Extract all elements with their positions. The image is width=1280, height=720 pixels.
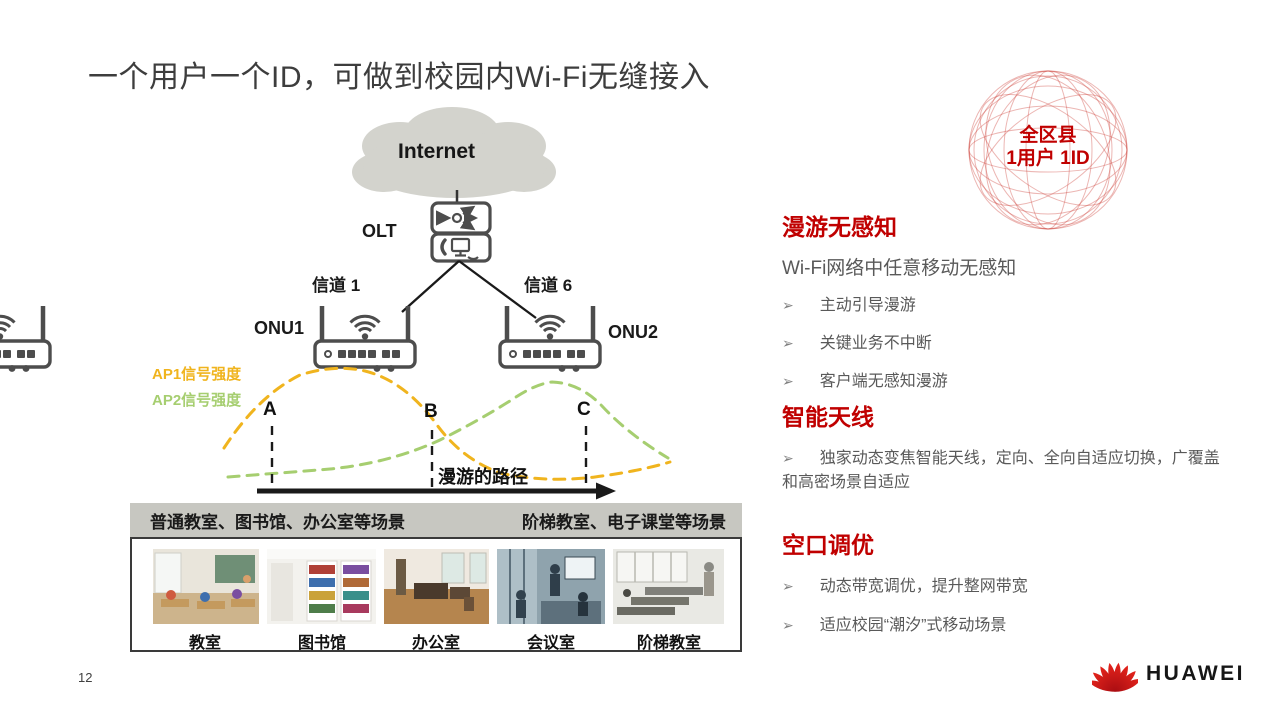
arrow-bullet-icon: ➢ bbox=[782, 450, 794, 466]
bullet-item: ➢客户端无感知漫游 bbox=[782, 369, 1234, 394]
photo-label-meeting-room: 会议室 bbox=[509, 629, 593, 653]
section-smart-antenna: 智能天线 ➢独家动态变焦智能天线，定向、全向自适应切换，广覆盖和高密场景自适应 bbox=[782, 398, 1234, 495]
huawei-logo: HUAWEI bbox=[1092, 654, 1245, 694]
arrow-bullet-icon: ➢ bbox=[782, 373, 794, 389]
channel-1-label: 信道 1 bbox=[312, 271, 360, 296]
onu1-label: ONU1 bbox=[254, 318, 304, 339]
huawei-logo-text: HUAWEI bbox=[1146, 662, 1245, 686]
photo-classroom bbox=[153, 549, 259, 624]
badge-text: 全区县 1用户 1ID bbox=[966, 124, 1130, 170]
onu1-icon bbox=[315, 306, 415, 372]
legend-ap1-signal: AP1信号强度 bbox=[152, 363, 241, 384]
bullet-text: 动态带宽调优，提升整网带宽 bbox=[820, 578, 1028, 595]
olt-label: OLT bbox=[362, 221, 397, 242]
onu2-icon bbox=[500, 306, 600, 372]
scene-photo-strip: 教室 图书馆 办公室 会议室 阶梯教室 bbox=[130, 537, 742, 652]
photo-label-lecture-hall: 阶梯教室 bbox=[619, 629, 719, 653]
arrow-bullet-icon: ➢ bbox=[782, 578, 794, 594]
bullet-item: ➢适应校园“潮汐”式移动场景 bbox=[782, 613, 1234, 638]
bullet-text: 适应校园“潮汐”式移动场景 bbox=[820, 617, 1007, 634]
onu2-label: ONU2 bbox=[608, 322, 658, 343]
badge-line1: 全区县 bbox=[966, 124, 1130, 147]
channel-6-label: 信道 6 bbox=[524, 271, 572, 296]
legend-ap2-signal: AP2信号强度 bbox=[152, 389, 241, 410]
bullet-item: ➢动态带宽调优，提升整网带宽 bbox=[782, 574, 1234, 599]
section-smart-antenna-heading: 智能天线 bbox=[782, 398, 1234, 432]
section-air-interface-heading: 空口调优 bbox=[782, 526, 1234, 560]
roam-path-arrow bbox=[257, 483, 616, 500]
section-air-interface: 空口调优 ➢动态带宽调优，提升整网带宽 ➢适应校园“潮汐”式移动场景 bbox=[782, 526, 1234, 638]
bullet-text: 主动引导漫游 bbox=[820, 297, 916, 314]
section-roaming-heading: 漫游无感知 bbox=[782, 208, 1234, 242]
roam-path-label: 漫游的路径 bbox=[438, 463, 528, 489]
scene-banner: 普通教室、图书馆、办公室等场景 阶梯教室、电子课堂等场景 bbox=[130, 503, 742, 537]
bullet-text: 客户端无感知漫游 bbox=[820, 373, 948, 390]
photo-label-office: 办公室 bbox=[394, 629, 478, 653]
arrow-bullet-icon: ➢ bbox=[782, 335, 794, 351]
section-roaming: 漫游无感知 Wi-Fi网络中任意移动无感知 ➢主动引导漫游 ➢关键业务不中断 ➢… bbox=[782, 208, 1234, 394]
photo-library bbox=[267, 549, 376, 624]
slide: 一个用户一个ID，可做到校园内Wi-Fi无缝接入 Internet OLT 信道… bbox=[0, 0, 1280, 720]
huawei-flower-icon bbox=[1092, 654, 1138, 694]
point-b-label: B bbox=[424, 401, 438, 423]
scene-banner-right: 阶梯教室、电子课堂等场景 bbox=[522, 508, 726, 533]
arrow-bullet-icon: ➢ bbox=[782, 617, 794, 633]
bullet-item: ➢独家动态变焦智能天线，定向、全向自适应切换，广覆盖和高密场景自适应 bbox=[782, 446, 1234, 495]
point-c-label: C bbox=[577, 399, 591, 421]
photo-label-library: 图书馆 bbox=[280, 629, 364, 653]
arrow-bullet-icon: ➢ bbox=[782, 297, 794, 313]
olt-icon bbox=[432, 203, 490, 261]
point-a-label: A bbox=[263, 399, 277, 421]
bullet-text: 关键业务不中断 bbox=[820, 335, 932, 352]
page-title: 一个用户一个ID，可做到校园内Wi-Fi无缝接入 bbox=[88, 52, 710, 96]
bullet-item: ➢关键业务不中断 bbox=[782, 331, 1234, 356]
photo-office bbox=[384, 549, 489, 624]
section-roaming-subtitle: Wi-Fi网络中任意移动无感知 bbox=[782, 253, 1234, 280]
bullet-text: 独家动态变焦智能天线，定向、全向自适应切换，广覆盖和高密场景自适应 bbox=[782, 450, 1220, 491]
scene-banner-left: 普通教室、图书馆、办公室等场景 bbox=[150, 508, 405, 533]
badge-line2: 1用户 1ID bbox=[966, 147, 1130, 170]
photo-lecture-hall bbox=[613, 549, 724, 624]
photo-meeting-room bbox=[497, 549, 605, 624]
page-number: 12 bbox=[78, 670, 92, 685]
bullet-item: ➢主动引导漫游 bbox=[782, 293, 1234, 318]
photo-label-classroom: 教室 bbox=[170, 629, 240, 653]
internet-label: Internet bbox=[398, 140, 475, 164]
